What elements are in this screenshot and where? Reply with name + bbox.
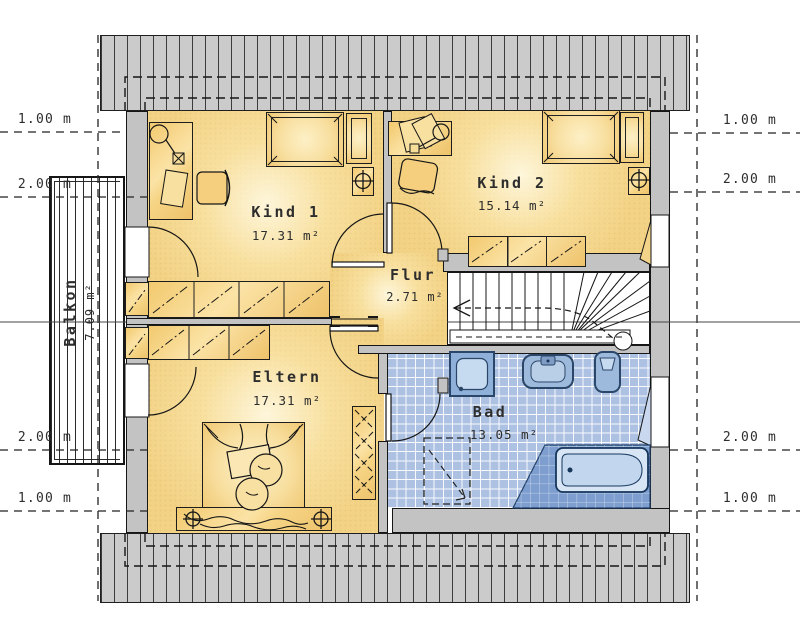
wall-bad-left-upper [378, 353, 388, 394]
dim-bottom-right-2: 2.00 m [718, 430, 782, 445]
window-left-upper [125, 282, 150, 316]
roof-strip-top [100, 35, 690, 111]
dim-bottom-left-2: 2.00 m [14, 430, 76, 445]
label-kind2-area: 15.14 m² [466, 198, 558, 213]
wall-kind1-eltern [126, 318, 332, 325]
wall-stairs-bad [358, 345, 650, 354]
dim-top-right-2: 2.00 m [718, 172, 782, 187]
kind1-wardrobe [148, 281, 330, 318]
eltern-wardrobe [148, 325, 270, 360]
label-flur-name: Flur [382, 266, 444, 284]
label-kind1-name: Kind 1 [240, 203, 332, 221]
kind2-bed [542, 110, 620, 164]
label-kind2-name: Kind 2 [466, 174, 558, 192]
kind1-cabinet [346, 113, 372, 164]
kind1-bed [266, 112, 344, 167]
kind1-desk [149, 122, 193, 220]
label-bad-area: 13.05 m² [458, 427, 550, 442]
label-flur-area: 2.71 m² [378, 290, 452, 304]
eltern-bed [202, 422, 305, 512]
kind2-cabinet [620, 112, 644, 163]
dim-top-right-1: 1.00 m [718, 113, 782, 128]
wall-exterior-bottom-bad [392, 508, 670, 533]
kind1-nightstand [352, 167, 374, 196]
label-bad-name: Bad [458, 403, 522, 421]
label-balkon-area: 7.09 m² [83, 260, 97, 364]
floorplan-canvas: Kind 1 17.31 m² Kind 2 15.14 m² Flur 2.7… [0, 0, 800, 627]
eltern-bench [176, 507, 332, 531]
label-kind1-area: 17.31 m² [240, 228, 332, 243]
dim-top-left-2: 2.00 m [14, 177, 76, 192]
label-eltern-name: Eltern [238, 368, 336, 386]
wall-exterior-right [650, 111, 670, 533]
dim-top-left-1: 1.00 m [14, 112, 76, 127]
dim-bottom-left-1: 1.00 m [14, 491, 76, 506]
dim-bottom-right-1: 1.00 m [718, 491, 782, 506]
window-left-lower [125, 327, 150, 359]
eltern-shelf [352, 406, 376, 500]
staircase [447, 272, 650, 345]
roof-strip-bottom [100, 533, 690, 603]
label-eltern-area: 17.31 m² [238, 393, 336, 408]
wall-bad-left-lower [378, 441, 388, 533]
kind2-nightstand [628, 167, 650, 195]
label-balkon-name: Balkon [61, 256, 79, 368]
kind2-desk [388, 121, 452, 156]
kind2-sideboard [468, 236, 586, 267]
